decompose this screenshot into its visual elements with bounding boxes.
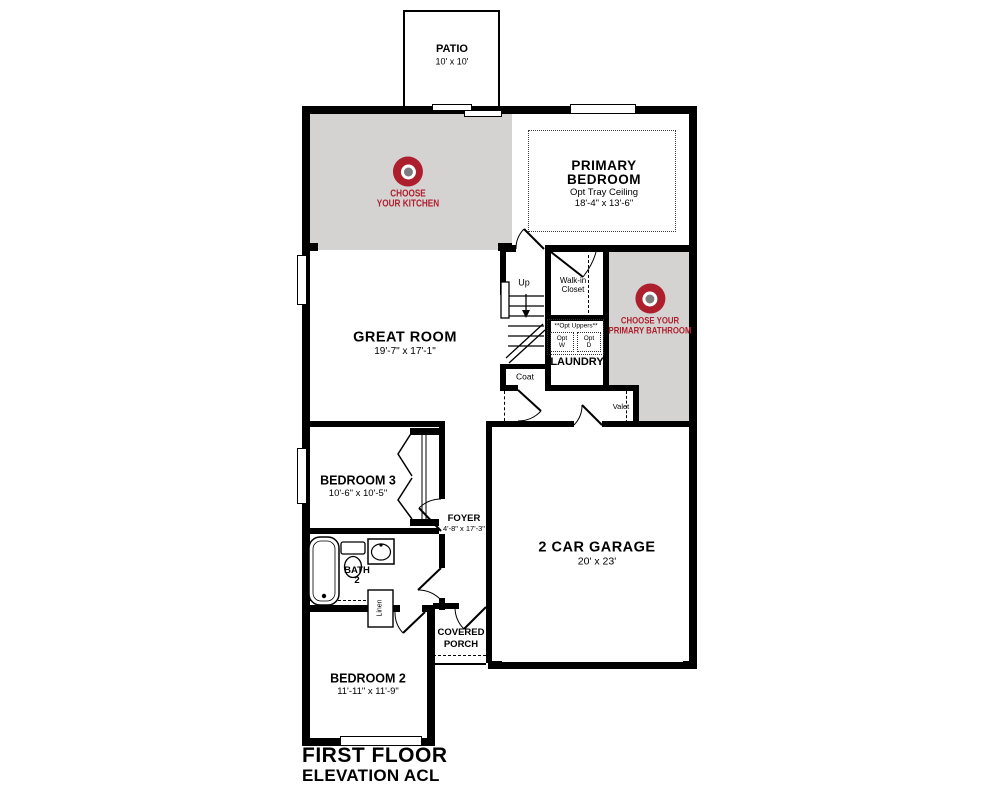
walkin-closet-door	[551, 252, 596, 277]
garage-dims: 20' x 23'	[578, 556, 616, 567]
wall-right-upper	[689, 106, 697, 428]
wall-bath2-bottom-left	[302, 605, 400, 612]
bath-hall-opening-dash	[308, 600, 366, 601]
wall-bedroom3-foyer-upper	[439, 421, 445, 499]
stairs-down-arrow	[522, 310, 530, 318]
choose-kitchen-label-line2: YOUR KITCHEN	[377, 200, 439, 210]
bathtub-inner	[313, 541, 335, 601]
wall-primarybed-bottom	[546, 245, 697, 252]
wall-left	[302, 106, 310, 618]
wall-bedroom3-foyer-lower	[439, 534, 445, 568]
wall-garage-top-right	[602, 421, 697, 427]
opt-washer-line2: W	[551, 342, 573, 349]
choose-primary-bathroom-cta[interactable]: CHOOSE YOUR PRIMARY BATHROOM	[599, 284, 700, 337]
wall-porch-top	[433, 603, 459, 609]
valet-label: Valet	[613, 403, 630, 411]
bedroom3-closet-bifold	[398, 432, 426, 519]
opt-dryer-line1: Opt	[578, 335, 600, 342]
garage-door-line	[502, 662, 683, 664]
wall-bedroom3-closet-bottom	[410, 519, 439, 526]
wall-kitchen-stub-left	[306, 243, 318, 251]
wall-greatroom-right-stub	[500, 245, 506, 295]
primary-bedroom-door	[516, 229, 544, 249]
wall-bath2-bottom-right	[422, 605, 432, 612]
opt-washer-box: Opt W	[550, 332, 574, 352]
floor-plan: **Opt Uppers** Opt W Opt D	[0, 0, 1000, 800]
opt-uppers-label: **Opt Uppers**	[554, 324, 597, 331]
covered-porch-label-line1: COVERED	[438, 628, 485, 638]
laundry-label: LAUNDRY	[550, 357, 603, 369]
linen-label: Linen	[376, 599, 383, 616]
wall-valet-right	[633, 388, 639, 425]
wall-bedroom2-right	[427, 605, 435, 746]
wall-garage-top-left	[486, 421, 574, 427]
opt-dryer-line2: D	[578, 342, 600, 349]
foyer-label: FOYER	[448, 514, 481, 524]
plan-subtitle: ELEVATION ACL	[302, 766, 440, 786]
bath2-door	[418, 568, 441, 600]
greatroom-window	[297, 255, 307, 305]
walkin-closet-rod-dash	[588, 255, 589, 313]
stairs	[501, 282, 545, 363]
bedroom3-label: BEDROOM 3	[320, 474, 396, 487]
opt-dryer-box: Opt D	[577, 332, 601, 352]
choose-kitchen-cta[interactable]: CHOOSE YOUR KITCHEN	[370, 157, 446, 210]
laundry-door	[518, 390, 541, 421]
bath2-label-line2: 2	[354, 576, 359, 586]
bedroom3-window	[297, 448, 307, 504]
bedroom2-door	[395, 612, 425, 633]
patio-dims: 10' x 10'	[436, 57, 469, 66]
bedroom3-door	[419, 499, 441, 531]
target-logo-ring	[401, 164, 416, 179]
bedroom2-dims: 11'-11" x 11'-9"	[337, 687, 399, 697]
primary-bedroom-window	[570, 104, 636, 114]
plan-title: FIRST FLOOR	[302, 744, 448, 768]
wall-garage-right	[689, 425, 697, 669]
foyer-dims: 4'-8" x 17'-3"	[443, 525, 485, 533]
bedroom3-dims: 10'-6" x 10'-5"	[329, 489, 387, 499]
garage-label: 2 CAR GARAGE	[538, 540, 655, 555]
covered-porch-label-line2: PORCH	[444, 640, 478, 650]
wall-bath2-top	[302, 528, 439, 534]
bedroom2-label: BEDROOM 2	[330, 672, 406, 685]
wall-kitchen-stub-right	[498, 243, 512, 251]
patio-slider-panel-b	[464, 110, 502, 117]
great-room-dims: 19'-7" x 17'-1"	[374, 347, 436, 358]
patio-label: PATIO	[436, 44, 468, 56]
primary-bedroom-label-line2: BEDROOM	[567, 173, 641, 187]
porch-edge-dash	[433, 655, 486, 656]
wall-bedroom3-closet-top	[410, 428, 439, 435]
coat-label: Coat	[516, 373, 534, 382]
sink-counter	[368, 539, 394, 564]
great-room-label: GREAT ROOM	[353, 330, 457, 345]
target-logo-dot	[404, 167, 413, 176]
stairs-up-label: Up	[518, 278, 530, 287]
opt-washer-line1: Opt	[551, 335, 573, 342]
bathtub-drain	[322, 594, 326, 598]
sink-basin	[372, 544, 391, 560]
front-door	[455, 607, 486, 629]
walkin-closet-label-line2: Closet	[562, 286, 585, 294]
primary-bathroom-area-lower	[639, 391, 690, 423]
target-logo-ring	[643, 291, 658, 306]
choose-bathroom-label-line2: PRIMARY BATHROOM	[609, 327, 692, 337]
wall-garage-left	[486, 423, 492, 663]
target-logo-icon	[393, 157, 423, 187]
wall-coat-top	[500, 364, 546, 369]
wall-left-bedroom2	[302, 610, 310, 746]
primary-bedroom-dims: 18'-4" x 13'-6"	[575, 199, 633, 209]
bathtub	[309, 537, 339, 605]
porch-bottom-line	[433, 663, 486, 665]
garage-entry-door	[574, 405, 602, 425]
primary-bedroom-opt: Opt Tray Ceiling	[570, 188, 638, 198]
sink-faucet	[379, 543, 382, 546]
target-logo-dot	[646, 294, 655, 303]
wall-greatroom-bottom	[302, 421, 445, 427]
hall-opening-dash	[504, 391, 505, 421]
target-logo-icon	[635, 284, 665, 314]
toilet-tank	[341, 542, 365, 554]
